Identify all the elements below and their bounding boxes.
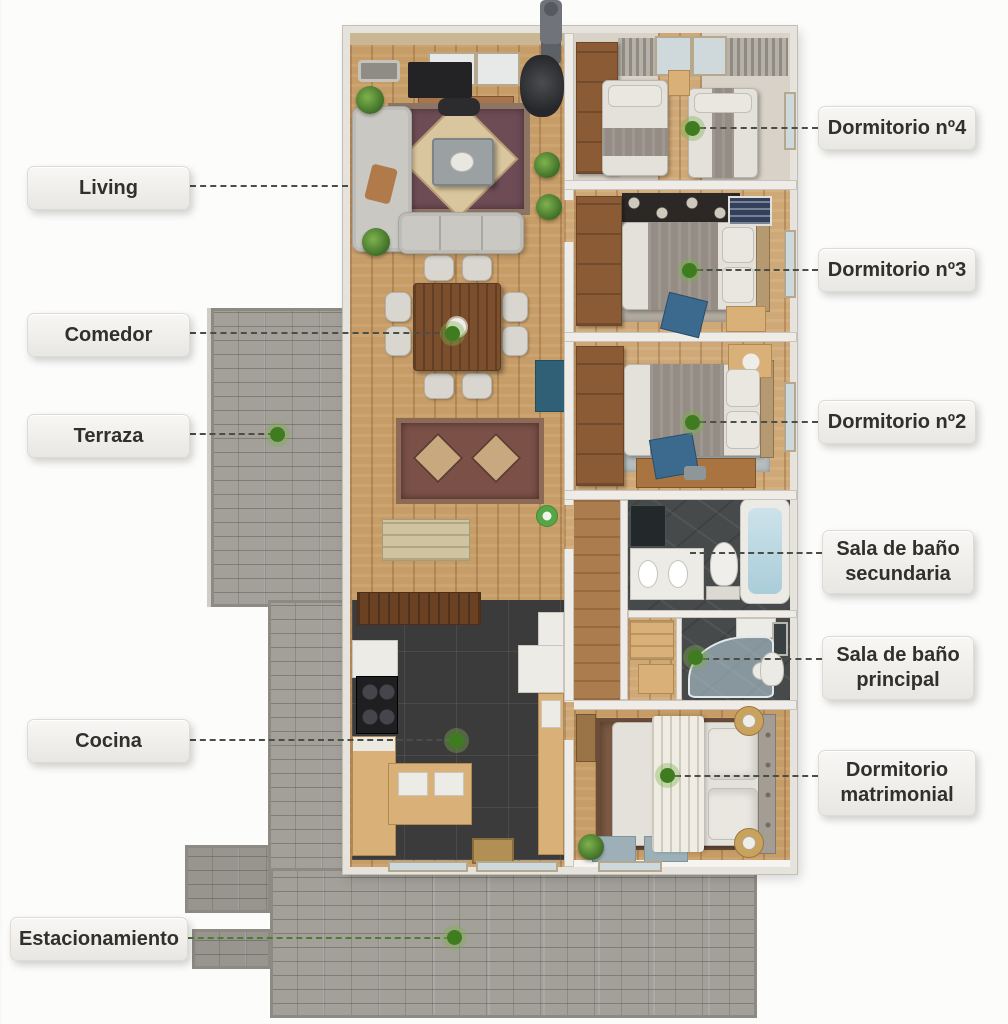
closet-wall [676, 618, 682, 700]
master-rear-window [598, 861, 662, 872]
dot-terraza [270, 427, 285, 442]
tv-screen [408, 62, 472, 98]
label-text: Dormitorio nº3 [828, 258, 966, 283]
living-top-wall [350, 33, 564, 45]
kitchen-stove [356, 676, 398, 734]
rear-sliding-door [476, 861, 558, 872]
bedroom2-window [784, 382, 796, 452]
master-plant [578, 834, 604, 860]
connector-comedor [190, 332, 450, 334]
hall-corridor-floor [574, 500, 620, 700]
master-blanket-drape [652, 716, 704, 852]
label-text: Sala de baño principal [823, 643, 973, 693]
chimney-cap [544, 2, 558, 16]
central-wall-door-opening [564, 702, 574, 740]
bedroom4-bed-left-blanket [602, 128, 668, 156]
label-dormitorio-2: Dormitorio nº2 [818, 400, 976, 444]
banquette-cushion [398, 772, 428, 796]
bath-principal-mirror [772, 622, 788, 656]
wood-stove [520, 55, 564, 117]
connector-living [190, 185, 348, 187]
closet-cabinet-upper [630, 620, 674, 660]
vanity-sink [668, 560, 688, 588]
label-text: Terraza [74, 424, 144, 449]
bath-principal-shelf [736, 618, 776, 638]
label-comedor: Comedor [27, 313, 190, 357]
wall-vent [358, 60, 400, 82]
connector-terraza [190, 433, 274, 435]
connector-bano-secundaria [690, 552, 822, 554]
dot-estacionamiento [447, 930, 462, 945]
bath-secondary-toilet [710, 542, 738, 586]
bedroom4-nightstand [668, 70, 690, 96]
label-dormitorio-matrimonial: Dormitorio matrimonial [818, 750, 976, 816]
bedroom2-pillow [726, 411, 760, 449]
label-cocina: Cocina [27, 719, 190, 763]
coffee-table-tray [450, 152, 474, 172]
floorplan-canvas: Living Comedor Terraza Cocina Estacionam… [0, 0, 1008, 1024]
bedroom2-pillow [726, 369, 760, 407]
bedroom2-desk-item [684, 466, 706, 480]
dining-chair [385, 292, 411, 322]
bath-secondary-toilet-tank [706, 586, 740, 600]
connector-dormitorio-2 [700, 421, 818, 423]
label-text: Sala de baño secundaria [823, 537, 973, 587]
corridor-wall [620, 500, 628, 700]
dot-dormitorio-matrimonial [660, 768, 675, 783]
bedroom4-bed-left-pillow [608, 85, 662, 107]
label-text: Cocina [75, 729, 142, 754]
connector-estacionamiento [188, 937, 450, 939]
connector-dormitorio-4 [700, 127, 818, 129]
side-walkway-paving [268, 600, 345, 872]
vanity-sink [638, 560, 658, 588]
bedroom3-ac-unit [728, 196, 772, 226]
bedroom3-headboard [756, 218, 770, 312]
bath-secondary-mirror [630, 505, 666, 547]
terrace-paving [207, 308, 345, 607]
nightstand-lamp [742, 836, 756, 850]
label-bano-secundaria: Sala de baño secundaria [822, 530, 974, 594]
central-wall-door-opening [564, 200, 574, 242]
bedroom2-wardrobe [576, 346, 624, 486]
dining-chair [462, 255, 492, 281]
console-speaker [438, 98, 480, 116]
breakfast-bar [357, 592, 481, 625]
label-estacionamiento: Estacionamiento [10, 917, 188, 961]
plant-living-4 [536, 194, 562, 220]
green-pot [536, 505, 558, 527]
kitchen-sink [541, 700, 561, 728]
dot-dormitorio-4 [685, 121, 700, 136]
bedroom4-curtains-left [618, 38, 658, 76]
closet-cabinet-lower [638, 664, 674, 694]
label-text: Dormitorio matrimonial [819, 758, 975, 808]
blue-cabinet [535, 360, 565, 412]
dining-chair [502, 326, 528, 356]
label-terraza: Terraza [27, 414, 190, 458]
wall-bedroom4-3 [564, 180, 797, 190]
bedroom3-wardrobe [576, 196, 622, 326]
connector-cocina [190, 739, 452, 741]
driveway-strip-upper [185, 845, 271, 913]
label-living: Living [27, 166, 190, 210]
dining-chair [462, 373, 492, 399]
dot-dormitorio-3 [682, 263, 697, 278]
dining-chair [502, 292, 528, 322]
dining-chair [424, 373, 454, 399]
bedroom4-bed-right-pillow [694, 93, 752, 113]
label-text: Estacionamiento [19, 927, 179, 952]
label-text: Living [79, 176, 138, 201]
wall-bath-master [564, 700, 797, 710]
label-text: Dormitorio nº4 [828, 116, 966, 141]
bedroom4-side-window [784, 92, 796, 150]
kitchen-counter-top-right [538, 612, 564, 646]
dot-cocina [449, 733, 464, 748]
kitchen-counter-top-left [352, 640, 398, 678]
wall-between-baths [628, 610, 797, 618]
connector-dormitorio-matrimonial [675, 775, 818, 777]
rear-sliding-door [388, 861, 468, 872]
connector-dormitorio-3 [697, 269, 818, 271]
bedroom3-side-table [726, 306, 766, 332]
plant-living-2 [362, 228, 390, 256]
nightstand-lamp [742, 714, 756, 728]
dot-bano-principal [688, 650, 703, 665]
parking-paving [270, 868, 757, 1018]
wall-bedroom2-bath [564, 490, 797, 500]
central-wall-door-opening [564, 505, 574, 549]
bedroom4-curtains-right [726, 38, 788, 76]
driveway-strip-lower [192, 929, 271, 969]
master-shelf [576, 714, 596, 762]
bedroom3-pillow [722, 267, 754, 303]
banquette-cushion [434, 772, 464, 796]
dining-chair [385, 326, 411, 356]
label-dormitorio-3: Dormitorio nº3 [818, 248, 976, 292]
kitchen-fridge [518, 645, 564, 693]
dining-chair [424, 255, 454, 281]
connector-bano-principal [703, 658, 822, 660]
label-bano-principal: Sala de baño principal [822, 636, 974, 700]
plant-living-3 [534, 152, 560, 178]
plant-living-1 [356, 86, 384, 114]
bedroom4-window [655, 36, 727, 76]
entry-bench [382, 519, 470, 561]
dot-comedor [445, 326, 460, 341]
bedroom3-pillow [722, 227, 754, 263]
central-wall [564, 33, 574, 867]
dot-dormitorio-2 [685, 415, 700, 430]
bedroom3-dark-rug [622, 193, 740, 225]
bathtub-water [748, 508, 782, 594]
sofa-bottom [398, 212, 524, 254]
label-dormitorio-4: Dormitorio nº4 [818, 106, 976, 150]
bedroom3-window [784, 230, 796, 298]
label-text: Comedor [65, 323, 153, 348]
label-text: Dormitorio nº2 [828, 410, 966, 435]
